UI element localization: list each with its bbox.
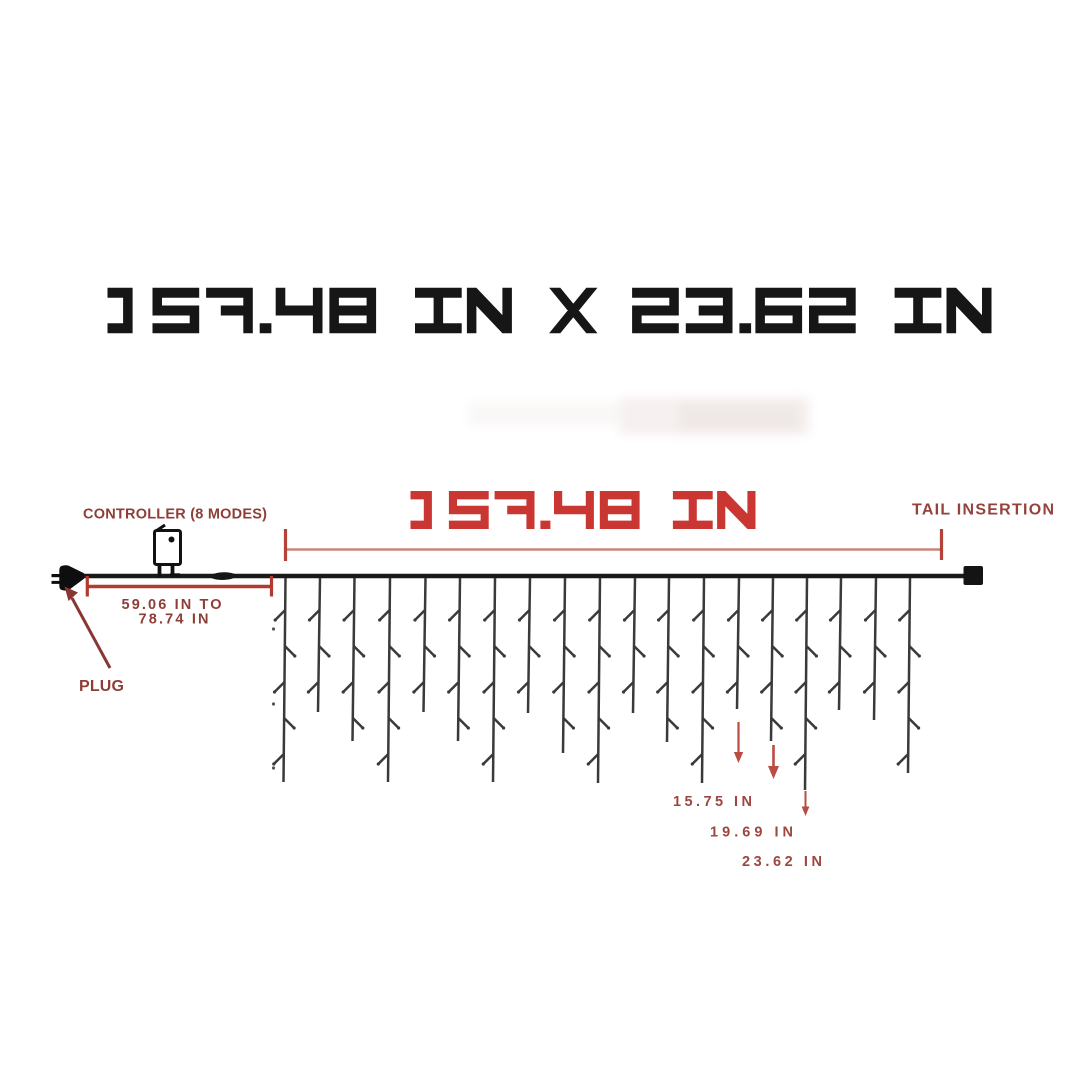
svg-text:TAIL INSERTION: TAIL INSERTION — [912, 502, 1054, 519]
svg-text:CONTROLLER (8 MODES): CONTROLLER (8 MODES) — [83, 507, 267, 523]
svg-text:PLUG: PLUG — [79, 678, 124, 695]
